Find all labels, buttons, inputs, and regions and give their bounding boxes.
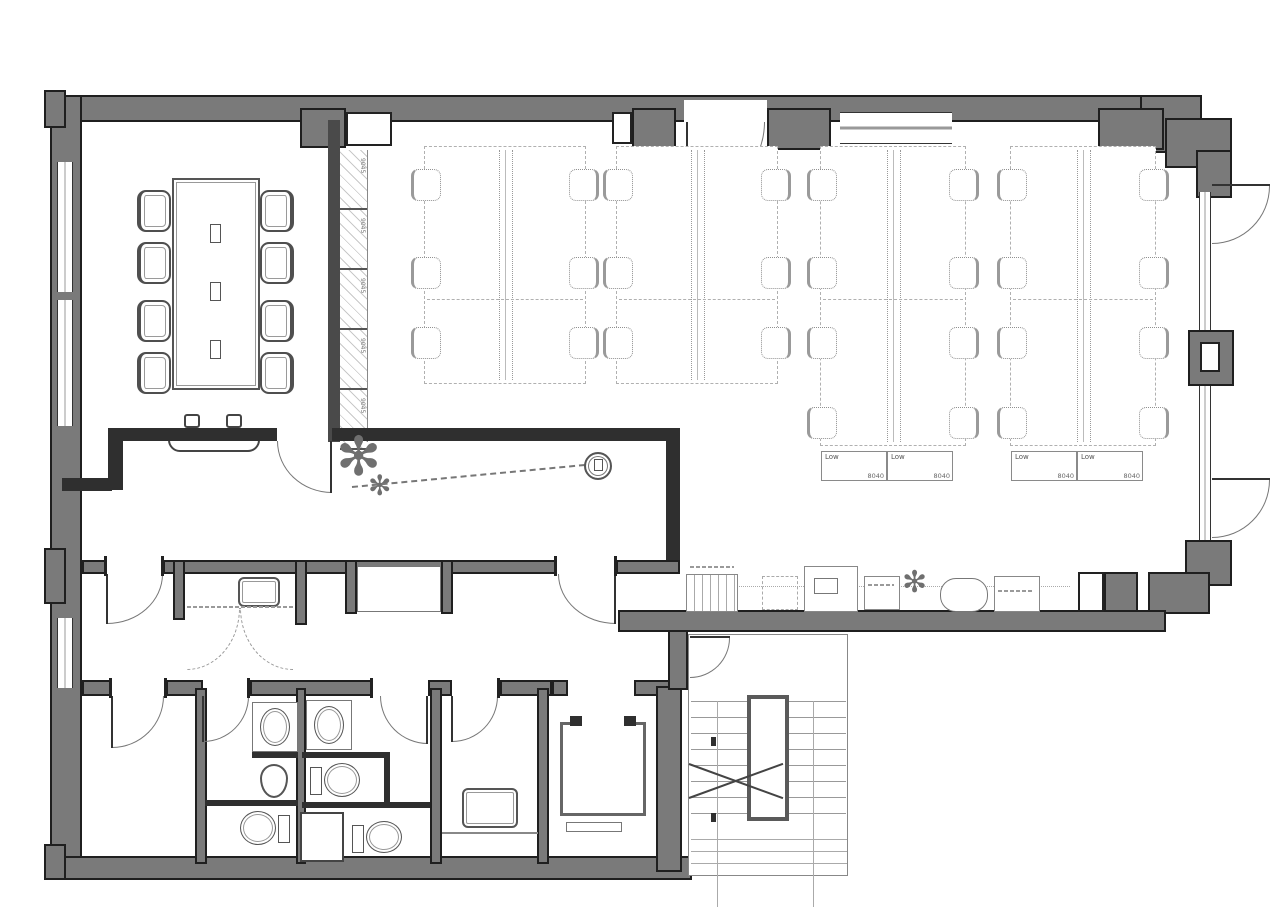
round-table <box>940 578 988 612</box>
wall-counter <box>302 752 390 758</box>
task-chair <box>1139 169 1169 201</box>
plant-icon: ✻ <box>902 568 927 598</box>
door-arc <box>452 696 498 742</box>
wall-low-top <box>250 680 372 696</box>
low-cabinet-label: Low <box>1081 453 1095 461</box>
task-chair <box>949 257 979 289</box>
task-chair <box>807 169 837 201</box>
kitchen-sink <box>238 577 280 607</box>
stall-partition <box>384 752 390 806</box>
shelf-unit <box>686 574 738 612</box>
locker-cell: 9045 <box>340 150 367 210</box>
desk-island <box>424 146 586 384</box>
window-left <box>57 300 73 426</box>
right-door-arc <box>1212 480 1270 538</box>
corner-pier <box>44 548 66 604</box>
task-chair <box>997 327 1027 359</box>
alcove <box>357 566 441 612</box>
bifold-door-arc <box>240 608 293 670</box>
right-door-leaf <box>1212 184 1270 186</box>
bifold-track <box>187 606 293 608</box>
toilet <box>350 818 404 856</box>
locker-cell: 9045 <box>340 270 367 330</box>
equipment-label <box>998 590 1034 592</box>
task-chair <box>807 257 837 289</box>
wall-dark <box>666 428 680 568</box>
stall-partition <box>205 800 298 806</box>
stool <box>184 414 200 428</box>
wall-dark <box>332 428 680 441</box>
door-arc <box>107 574 163 624</box>
meeting-chair <box>260 300 294 342</box>
stair-landing-lines <box>691 839 847 875</box>
window-top <box>612 112 632 144</box>
meeting-chair <box>137 190 171 232</box>
locker-strip: 90459045904590459045 <box>340 150 368 442</box>
corner-pier <box>44 844 66 880</box>
wall-column <box>1104 572 1138 612</box>
task-chair <box>411 257 441 289</box>
wall-mid <box>616 560 680 574</box>
desk-island <box>616 146 778 384</box>
meeting-door-arc <box>277 441 332 493</box>
door-jamb-tick <box>164 678 167 698</box>
elevator-jamb <box>570 716 582 726</box>
copier-tray <box>814 578 838 594</box>
pilaster-core <box>1200 342 1220 372</box>
wall-counter <box>252 752 298 758</box>
locker-cell: 9045 <box>340 330 367 390</box>
wall-stub <box>441 560 453 614</box>
task-chair <box>603 169 633 201</box>
toilet <box>238 808 292 848</box>
wall-office-bottom <box>618 610 1166 632</box>
meeting-chair <box>260 190 294 232</box>
meeting-chair <box>137 352 171 394</box>
right-door-leaf <box>1212 478 1270 480</box>
right-door-arc <box>1212 186 1270 244</box>
task-chair <box>1139 327 1169 359</box>
stair-flight-edge <box>717 701 718 907</box>
equipment-cabinet <box>994 576 1040 612</box>
mop-sink <box>462 788 518 828</box>
elevator-jamb <box>624 716 636 726</box>
wall-stub <box>173 560 185 620</box>
window-top <box>346 112 392 146</box>
door-jamb-tick <box>554 556 557 576</box>
wall-low-top <box>552 680 568 696</box>
cable-port <box>210 340 221 359</box>
meeting-door-leaf <box>330 441 332 493</box>
task-chair <box>949 327 979 359</box>
wall-stub <box>295 560 307 625</box>
task-chair <box>997 257 1027 289</box>
wall-low-top <box>82 680 112 696</box>
task-chair <box>1139 257 1169 289</box>
cable-port <box>210 282 221 301</box>
task-chair <box>411 327 441 359</box>
door-arc <box>112 696 164 748</box>
low-cabinet-label: Low <box>1015 453 1029 461</box>
meeting-chair <box>137 242 171 284</box>
task-chair <box>569 169 599 201</box>
wall-div <box>656 686 682 872</box>
task-chair <box>761 327 791 359</box>
stall-partition <box>302 802 430 808</box>
wall-dark <box>120 428 277 441</box>
low-cabinet: Low8040Low8040 <box>821 451 953 481</box>
floor-marked-space <box>762 576 798 610</box>
task-chair <box>949 169 979 201</box>
corner-step <box>1148 572 1210 614</box>
task-chair <box>603 257 633 289</box>
locker-dimension-label: 9045 <box>359 158 366 173</box>
window-left <box>57 618 73 688</box>
elevator-door-gap <box>578 719 628 725</box>
locker-dimension-label: 9045 <box>359 338 366 353</box>
toilet <box>308 760 362 800</box>
bifold-door-arc <box>187 608 240 670</box>
door-arc <box>558 574 616 624</box>
task-chair <box>603 327 633 359</box>
low-cabinet-dimension: 8040 <box>933 472 950 480</box>
elevator-car <box>560 722 646 816</box>
wash-basin <box>260 708 290 746</box>
locker-dimension-label: 9045 <box>359 398 366 413</box>
equipment-label <box>690 566 734 568</box>
task-chair <box>949 407 979 439</box>
task-chair <box>569 257 599 289</box>
wall-dark <box>62 478 112 491</box>
locker-cell: 9045 <box>340 210 367 270</box>
entrance-opening <box>684 100 767 123</box>
door-leaf <box>426 696 428 744</box>
door-jamb-tick <box>370 678 373 698</box>
task-chair <box>761 257 791 289</box>
low-cabinet-dimension: 8040 <box>867 472 884 480</box>
low-cabinet-cell: Low8040 <box>1011 451 1077 481</box>
low-cabinet-label: Low <box>891 453 905 461</box>
elevator-counterweight <box>566 822 622 832</box>
stair-treads-right <box>789 701 846 815</box>
door-leaf <box>451 696 453 742</box>
wall-partition <box>328 120 340 442</box>
window-left <box>57 162 73 292</box>
wall-bottom <box>50 856 692 880</box>
wall-stub <box>668 630 688 690</box>
stair-arrow <box>711 737 716 746</box>
stair-treads-left <box>691 701 747 815</box>
wall-column <box>632 108 676 148</box>
window-top <box>840 112 952 144</box>
task-chair <box>761 169 791 201</box>
door-jamb-tick <box>161 556 164 576</box>
meeting-chair <box>260 242 294 284</box>
printer-stand <box>864 576 900 610</box>
task-chair <box>1139 407 1169 439</box>
wall-opening <box>1078 572 1104 612</box>
door-jamb-tick <box>614 556 617 576</box>
door-jamb-tick <box>247 678 250 698</box>
door-jamb-tick <box>104 556 107 576</box>
locker-dimension-label: 9045 <box>359 218 366 233</box>
wall-column <box>1098 108 1164 150</box>
door-leaf <box>614 574 616 624</box>
door-arc <box>380 696 428 744</box>
meeting-chair <box>137 300 171 342</box>
desk-island: Low8040Low8040 <box>820 146 966 446</box>
task-chair <box>569 327 599 359</box>
stair-newel-wall <box>747 695 789 821</box>
stair-door-leaf <box>690 636 730 638</box>
low-cabinet-cell: Low8040 <box>821 451 887 481</box>
locker-dimension-label: 9045 <box>359 278 366 293</box>
task-chair <box>997 407 1027 439</box>
wash-basin <box>314 706 344 744</box>
door-jamb-tick <box>497 678 500 698</box>
low-cabinet-dimension: 8040 <box>1057 472 1074 480</box>
wall-column <box>767 108 831 150</box>
low-cabinet-cell: Low8040 <box>1077 451 1143 481</box>
wall-stub <box>345 560 357 614</box>
door-arc <box>203 696 249 742</box>
door-leaf <box>202 696 204 742</box>
meeting-chair <box>260 352 294 394</box>
task-chair <box>807 327 837 359</box>
door-leaf <box>106 574 108 624</box>
counter-line <box>442 832 538 834</box>
wall-div <box>537 688 549 864</box>
equipment-label <box>868 584 894 586</box>
floor-plan: 90459045904590459045 ✻ ✻ Low8040Low8040 … <box>0 0 1280 916</box>
stool <box>226 414 242 428</box>
door-leaf <box>111 696 113 748</box>
stair-arrow <box>711 813 716 822</box>
cable-port <box>210 224 221 243</box>
low-cabinet-cell: Low8040 <box>887 451 953 481</box>
task-chair <box>997 169 1027 201</box>
low-cabinet-label: Low <box>825 453 839 461</box>
stair-flight-edge <box>813 701 814 907</box>
corner-pier <box>44 90 66 128</box>
duct-shaft <box>300 812 344 862</box>
task-chair <box>807 407 837 439</box>
ceiling-symbol-core <box>594 459 603 471</box>
task-chair <box>411 169 441 201</box>
urinal <box>260 764 288 798</box>
low-cabinet: Low8040Low8040 <box>1011 451 1143 481</box>
wall-div <box>430 688 442 864</box>
desk-island: Low8040Low8040 <box>1010 146 1156 446</box>
door-jamb-tick <box>109 678 112 698</box>
low-cabinet-dimension: 8040 <box>1123 472 1140 480</box>
